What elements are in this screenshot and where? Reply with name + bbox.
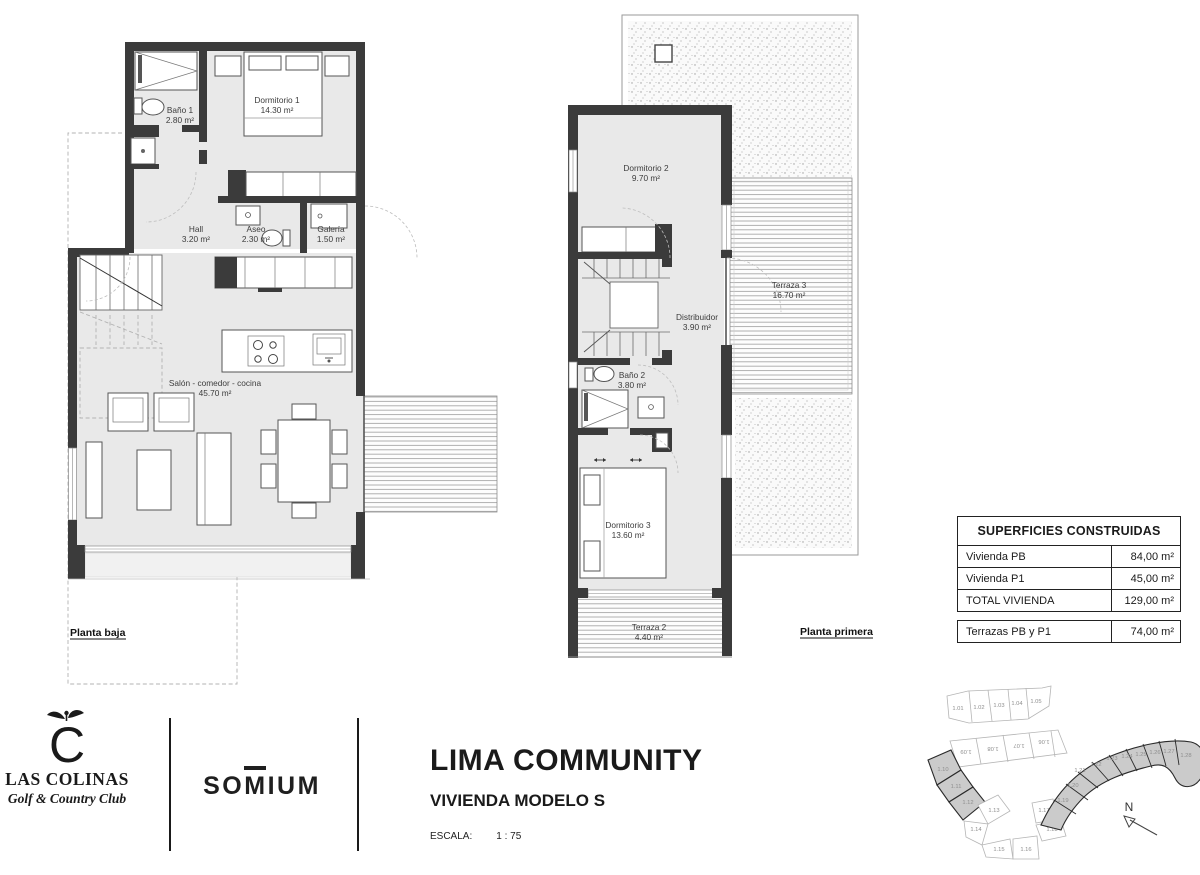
plot-label: 1.14 — [970, 827, 982, 833]
chair — [332, 464, 347, 488]
room-label: Salón - comedor - cocina — [169, 378, 262, 388]
floorplan-planta-baja: Baño 1 2.80 m² Dormitorio 1 14.30 m² Hal… — [0, 0, 560, 700]
somium-m-macron: M — [244, 772, 267, 801]
plot-label: 1.02 — [973, 705, 984, 711]
plot-label: 1.06 — [1038, 738, 1049, 744]
chair — [292, 503, 316, 518]
footer-divider — [357, 718, 359, 851]
room-area: 45.70 m² — [199, 388, 232, 398]
plot-label: 1.28 — [1180, 753, 1191, 759]
plot-label: 1.22 — [1090, 762, 1101, 768]
las-colinas-monogram: C — [35, 708, 99, 768]
las-colinas-logo: C LAS COLINAS Golf & Country Club — [0, 708, 142, 807]
room-label: Distribuidor — [676, 312, 718, 322]
room-area: 3.20 m² — [182, 234, 210, 244]
project-title: LIMA COMMUNITY — [430, 744, 703, 778]
sink — [638, 397, 664, 418]
site-plots-middle: 1.09 1.08 1.07 1.06 — [950, 730, 1067, 767]
room-area: 3.90 m² — [683, 322, 711, 332]
table-row: Vivienda PB 84,00 m² — [958, 546, 1180, 567]
coffee-table — [137, 450, 171, 510]
room-label: Dormitorio 2 — [623, 163, 669, 173]
room-label: Terraza 2 — [632, 622, 667, 632]
chair — [261, 464, 276, 488]
toilet-tank — [585, 368, 593, 381]
room-label: Galería — [317, 224, 345, 234]
plan-title-primera: Planta primera — [800, 626, 873, 638]
room-area: 2.30 m² — [242, 234, 270, 244]
somium-text: IUM — [268, 772, 321, 800]
plot-label: 1.27 — [1163, 749, 1174, 755]
table-row: Vivienda P1 45,00 m² — [958, 567, 1180, 589]
pillow — [286, 56, 318, 70]
plot-label: 1.04 — [1011, 701, 1023, 707]
row-value: 129,00 m² — [1111, 590, 1180, 611]
row-label: TOTAL VIVIENDA — [958, 595, 1111, 607]
site-plots-top: 1.01 1.02 1.03 1.04 1.05 — [947, 686, 1051, 723]
chair — [292, 404, 316, 419]
room-area: 14.30 m² — [261, 105, 294, 115]
plot-label: 1.01 — [952, 706, 963, 712]
row-value: 84,00 m² — [1111, 546, 1180, 567]
sink — [236, 206, 260, 225]
north-arrow: N — [1124, 800, 1157, 835]
plot-label: 1.11 — [951, 784, 962, 790]
room-label: Dormitorio 3 — [605, 520, 651, 530]
row-label: Vivienda P1 — [958, 573, 1111, 585]
scale-value: 1 : 75 — [496, 831, 521, 842]
site-plan: 1.01 1.02 1.03 1.04 1.05 1.09 1.08 1.07 … — [920, 678, 1200, 875]
room-label: Aseo — [247, 224, 266, 234]
plan-sheet: Baño 1 2.80 m² Dormitorio 1 14.30 m² Hal… — [0, 0, 1200, 875]
row-value: 45,00 m² — [1111, 568, 1180, 589]
room-label: Dormitorio 1 — [254, 95, 300, 105]
plan-title-baja: Planta baja — [70, 627, 126, 639]
room-label: Baño 2 — [619, 370, 646, 380]
scale-label: ESCALA: — [430, 831, 472, 842]
surfaces-table: SUPERFICIES CONSTRUIDAS Vivienda PB 84,0… — [957, 516, 1181, 643]
row-label: Terrazas PB y P1 — [958, 626, 1111, 638]
plot-label: 1.10 — [937, 767, 948, 773]
room-area: 13.60 m² — [612, 530, 645, 540]
plot-label: 1.13 — [988, 808, 999, 814]
chair — [332, 430, 347, 454]
gravel-roof — [735, 398, 852, 548]
plot-label: 1.09 — [960, 748, 971, 754]
room-area: 1.50 m² — [317, 234, 345, 244]
plot-label: 1.25 — [1135, 752, 1146, 758]
room-area: 9.70 m² — [632, 173, 660, 183]
toilet-tank — [134, 98, 142, 114]
row-label: Vivienda PB — [958, 551, 1111, 563]
nightstand — [215, 56, 241, 76]
tv-unit — [197, 433, 231, 525]
somium-logo: SOMIUM — [192, 772, 332, 801]
pillow — [249, 56, 281, 70]
plot-label: 1.03 — [993, 703, 1004, 709]
plot-label: 1.19 — [1057, 798, 1068, 804]
room-label: Baño 1 — [167, 105, 194, 115]
chair — [261, 430, 276, 454]
dining-table — [278, 420, 330, 502]
terrace-deck-pb — [364, 396, 497, 512]
room-area: 3.80 m² — [618, 380, 646, 390]
surfaces-table-title: SUPERFICIES CONSTRUIDAS — [958, 517, 1180, 546]
shower — [582, 390, 628, 428]
armchair — [108, 393, 148, 431]
room-label: Hall — [189, 224, 203, 234]
plot-label: 1.24 — [1121, 754, 1133, 760]
table-row: TOTAL VIVIENDA 129,00 m² — [958, 589, 1180, 611]
plot-label: 1.12 — [962, 800, 973, 806]
kitchen-island — [222, 330, 352, 372]
plot-label: 1.15 — [993, 847, 1004, 853]
svg-text:C: C — [49, 717, 85, 773]
plot-label: 1.08 — [987, 745, 998, 751]
pillow — [584, 541, 600, 571]
shower — [135, 52, 197, 90]
sideboard — [86, 442, 102, 518]
row-value: 74,00 m² — [1111, 621, 1180, 642]
scale-row: ESCALA:1 : 75 — [430, 831, 703, 842]
wardrobe — [246, 172, 356, 198]
nightstand — [325, 56, 349, 76]
skylight — [655, 45, 672, 62]
plot-label: 1.26 — [1149, 750, 1160, 756]
armchair — [154, 393, 194, 431]
project-subtitle: VIVIENDA MODELO S — [430, 791, 703, 811]
pillow — [584, 475, 600, 505]
somium-text: SO — [203, 772, 244, 800]
plot-label: 1.05 — [1030, 699, 1041, 705]
table-row-terraces: Terrazas PB y P1 74,00 m² — [958, 621, 1180, 642]
room-area: 16.70 m² — [773, 290, 806, 300]
title-block: LIMA COMMUNITY VIVIENDA MODELO S ESCALA:… — [430, 744, 703, 842]
room-area: 2.80 m² — [166, 115, 194, 125]
toilet — [142, 99, 164, 115]
plot-label: 1.21 — [1074, 768, 1085, 774]
door-arc — [365, 206, 417, 258]
plot-label: 1.07 — [1013, 742, 1024, 748]
plot-label: 1.20 — [1067, 783, 1078, 789]
footer-divider — [169, 718, 171, 851]
las-colinas-tagline: Golf & Country Club — [0, 791, 142, 807]
north-label: N — [1125, 800, 1134, 814]
toilet — [594, 367, 614, 382]
plot-label: 1.16 — [1020, 847, 1031, 853]
room-area: 4.40 m² — [635, 632, 663, 642]
room-label: Terraza 3 — [772, 280, 807, 290]
plot-label: 1.23 — [1106, 756, 1117, 762]
floorplan-planta-primera: Dormitorio 2 9.70 m² Terraza 3 16.70 m² … — [560, 0, 900, 700]
